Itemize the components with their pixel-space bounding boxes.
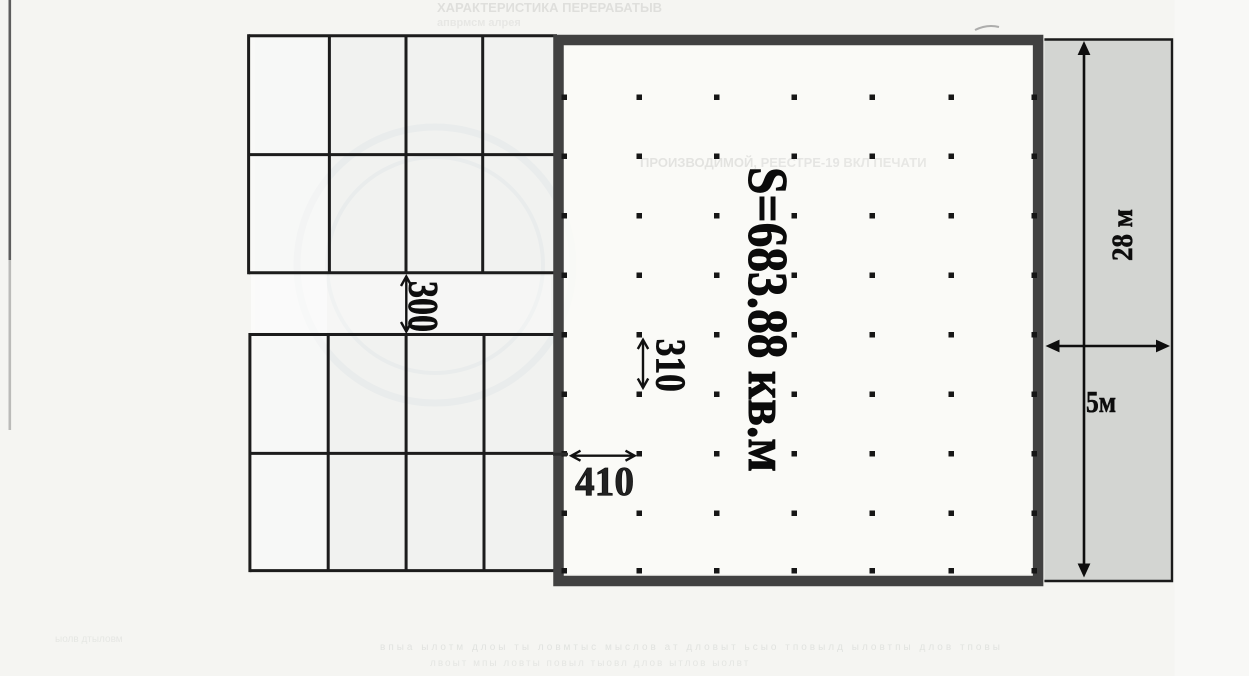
svg-text:5м: 5м xyxy=(1086,384,1116,419)
svg-text:300: 300 xyxy=(399,281,445,332)
svg-text:310: 310 xyxy=(647,339,693,392)
svg-text:апврмсм алрея: апврмсм алрея xyxy=(437,17,521,29)
svg-text:ХАРАКТЕРИСТИКА ПЕРЕРАБАТЫВ: ХАРАКТЕРИСТИКА ПЕРЕРАБАТЫВ xyxy=(437,0,662,15)
svg-text:ыолв дтыловм: ыолв дтыловм xyxy=(55,634,123,645)
svg-text:28 м: 28 м xyxy=(1106,209,1139,261)
svg-text:410: 410 xyxy=(575,458,634,504)
svg-text:S=683.88 кв.м: S=683.88 кв.м xyxy=(736,167,798,472)
svg-text:лвоыт мпы ловты повыл тыов: лвоыт мпы ловты повыл тыовл длов ытлов ы… xyxy=(430,658,750,669)
svg-text:впыа ылотм длоы ты ловмтыс: впыа ылотм длоы ты ловмтыс мыслов ат дло… xyxy=(380,642,1003,653)
